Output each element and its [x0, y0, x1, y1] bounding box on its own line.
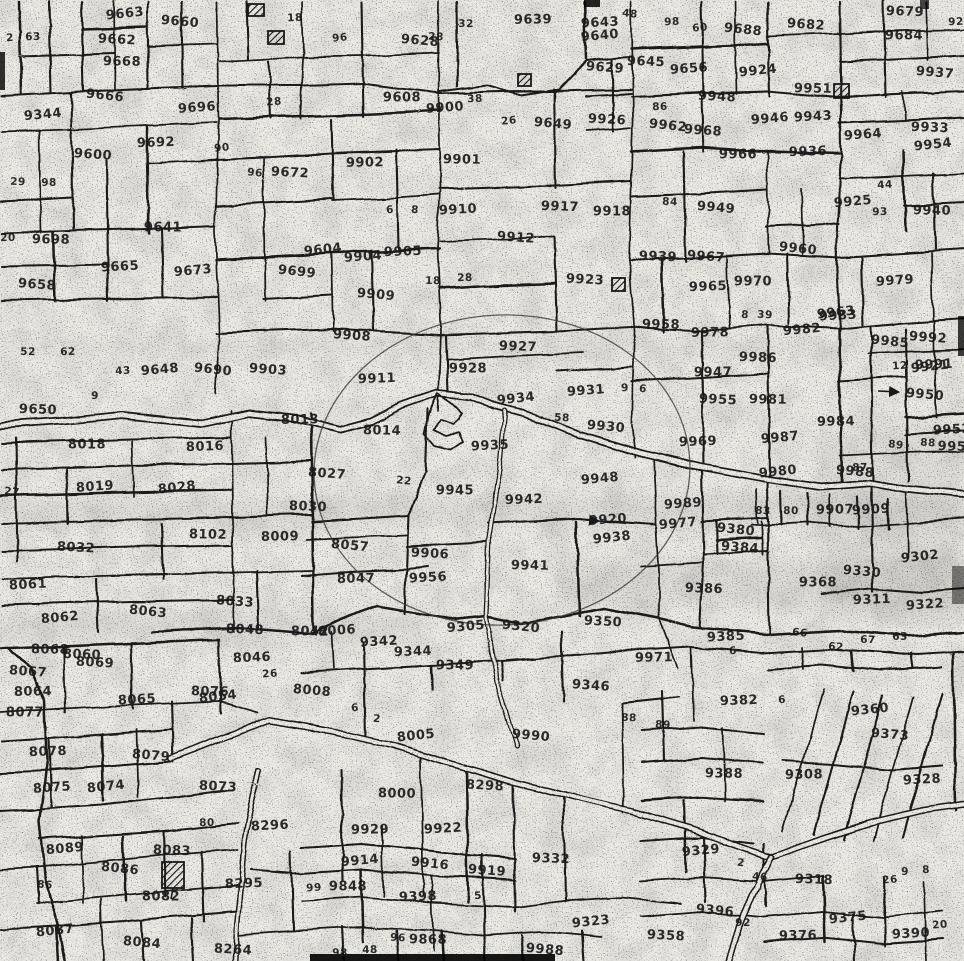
plot-number-label: 9907 — [816, 502, 854, 518]
plot-number-label: 8000 — [378, 786, 416, 802]
plot-number-label: 99 — [306, 881, 322, 894]
plot-number-label: 8078 — [29, 744, 68, 760]
plot-boundary — [65, 468, 66, 522]
plot-number-label: 9905 — [384, 244, 423, 260]
plot-number-label: 8030 — [289, 499, 328, 515]
plot-number-label: 9967 — [686, 248, 725, 266]
plot-number-label: 98 — [664, 16, 680, 29]
plot-number-label: 9662 — [98, 32, 137, 49]
plot-number-label: 9931 — [566, 382, 605, 400]
plot-number-label: 28 — [266, 95, 282, 108]
plot-number-label: 98 — [41, 177, 57, 189]
plot-number-label: 9901 — [443, 152, 481, 168]
plot-number-label: 9350 — [584, 614, 623, 631]
plot-number-label: 8082 — [142, 890, 180, 905]
plot-number-label: 63 — [25, 31, 41, 43]
plot-number-label: 9386 — [685, 581, 724, 597]
plot-number-label: 29 — [10, 176, 26, 189]
plot-number-label: 26 — [262, 667, 278, 680]
plot-number-label: 9318 — [795, 872, 834, 888]
plot-boundary — [455, 0, 456, 85]
plot-number-label: 9923 — [566, 272, 605, 289]
plot-number-label: 9903 — [248, 361, 287, 379]
plot-number-label: 9952 — [933, 422, 964, 439]
plot-number-label: 5 — [474, 890, 483, 903]
plot-number-label: 8006 — [317, 622, 356, 640]
plot-number-label: 8060 — [63, 647, 102, 663]
plot-number-label: 9332 — [532, 851, 571, 867]
plot-number-label: 8075 — [32, 779, 71, 797]
plot-number-label: 9909 — [852, 502, 891, 519]
plot-number-label: 8077 — [6, 706, 44, 721]
edge-mark — [958, 316, 964, 356]
plot-number-label: 9955 — [699, 392, 738, 409]
plot-number-label: 9650 — [19, 402, 58, 418]
plot-number-label: 9696 — [177, 99, 216, 117]
plot-number-label: 9926 — [588, 112, 627, 129]
plot-number-label: 2 — [6, 32, 14, 44]
plot-number-label: 8102 — [189, 527, 227, 543]
plot-number-label: 8065 — [118, 692, 157, 709]
edge-mark — [952, 566, 964, 604]
plot-number-label: 84 — [662, 196, 678, 209]
plot-boundary — [715, 520, 716, 553]
plot-number-label: 9969 — [679, 434, 718, 450]
plot-number-label: 39 — [757, 309, 773, 322]
plot-number-label: 8019 — [75, 478, 114, 496]
plot-number-label: 9398 — [399, 889, 438, 905]
plot-number-label: 9641 — [144, 221, 182, 236]
cadastral-map-sheet: 9663966096629668632934496669600299896929… — [0, 0, 964, 961]
hatched-building-symbol — [834, 84, 849, 98]
plot-number-label: 26 — [882, 873, 898, 886]
plot-number-label: 8048 — [226, 622, 265, 638]
plot-number-label: 66 — [792, 626, 809, 640]
plot-number-label: 9968 — [683, 122, 722, 140]
plot-number-label: 93 — [872, 206, 888, 218]
plot-number-label: 9 — [621, 382, 630, 395]
plot-number-label: 2 — [736, 857, 745, 870]
plot-number-label: 9965 — [689, 279, 728, 295]
plot-boundary — [779, 490, 780, 523]
plot-number-label: 9984 — [817, 414, 855, 430]
plot-number-label: 9983 — [819, 308, 858, 325]
plot-number-label: 9927 — [499, 339, 538, 355]
scanned-cadastral-map-page: 9663966096629668632934496669600299896929… — [0, 0, 964, 961]
plot-number-label: 2 — [372, 713, 381, 726]
plot-number-label: 96 — [247, 166, 264, 179]
plot-number-label: 9668 — [103, 54, 141, 70]
hatched-building-symbol — [248, 4, 264, 16]
plot-number-label: 92 — [735, 917, 751, 929]
plot-number-label: 63 — [892, 631, 908, 643]
plot-number-label: 9935 — [471, 438, 510, 455]
plot-number-label: 9911 — [358, 371, 397, 387]
plot-number-label: 9342 — [360, 634, 399, 651]
plot-number-label: 9900 — [425, 99, 464, 117]
plot-number-label: 9645 — [627, 54, 666, 70]
plot-number-label: 995 — [937, 439, 964, 455]
plot-number-label: 46 — [752, 870, 768, 883]
plot-number-label: 8076 — [191, 684, 229, 700]
plot-number-label: 96 — [390, 932, 406, 945]
plot-number-label: 89 — [888, 438, 905, 452]
hatched-building-symbol — [162, 862, 184, 888]
plot-number-label: 9904 — [343, 248, 382, 266]
plot-boundary — [146, 0, 147, 87]
plot-number-label: 8083 — [153, 843, 192, 859]
plot-number-label: 9943 — [794, 109, 833, 126]
plot-number-label: 98 — [332, 947, 348, 959]
plot-number-label: 8 — [741, 309, 750, 322]
plot-number-label: 8027 — [307, 465, 346, 483]
plot-number-label: 6 — [778, 694, 787, 707]
plot-number-label: 9656 — [669, 60, 708, 78]
plot-number-label: 9942 — [505, 492, 544, 508]
plot-number-label: 9918 — [593, 205, 631, 220]
plot-number-label: 9600 — [73, 146, 112, 164]
plot-number-label: 9979 — [875, 272, 914, 290]
plot-number-label: 9346 — [571, 677, 610, 695]
plot-number-label: 9388 — [705, 766, 743, 782]
plot-number-label: 88 — [621, 712, 637, 725]
plot-number-label: 9639 — [514, 12, 552, 28]
plot-number-label: 9906 — [411, 546, 450, 563]
plot-number-label: 18 — [287, 12, 303, 25]
plot-number-label: 9344 — [394, 644, 433, 660]
hatched-building-symbol — [268, 31, 284, 44]
plot-number-label: 9951 — [794, 81, 832, 97]
plot-number-label: 38 — [467, 93, 483, 106]
plot-number-label: 9945 — [436, 484, 474, 499]
plot-number-label: 9349 — [436, 659, 474, 674]
plot-number-label: 9311 — [853, 592, 892, 608]
plot-number-label: 44 — [877, 179, 893, 192]
plot-number-label: 12 — [892, 359, 908, 372]
plot-number-label: 60 — [692, 21, 709, 34]
plot-number-label: 6 — [729, 645, 738, 658]
plot-number-label: 9908 — [332, 327, 371, 345]
plot-number-label: 9308 — [785, 767, 823, 783]
plot-number-label: 9940 — [913, 203, 951, 219]
plot-number-label: 9929 — [351, 822, 389, 838]
plot-number-label: 8033 — [215, 593, 254, 611]
plot-number-label: 67 — [860, 634, 876, 647]
plot-number-label: 88 — [920, 436, 936, 449]
plot-number-label: 9978 — [691, 325, 729, 341]
plot-number-label: 80 — [783, 505, 799, 517]
plot-number-label: 32 — [458, 18, 474, 30]
plot-number-label: 9684 — [885, 29, 923, 44]
plot-number-label: 90 — [214, 141, 231, 155]
plot-number-label: 6 — [638, 383, 647, 396]
plot-number-label: 20 — [932, 918, 949, 931]
plot-number-label: 8016 — [186, 439, 225, 455]
plot-number-label: 9981 — [749, 392, 787, 408]
plot-number-label: 48 — [622, 7, 639, 21]
plot-number-label: 9919 — [467, 862, 506, 880]
plot-number-label: 9679 — [886, 4, 925, 20]
plot-number-label: 80 — [199, 817, 215, 829]
plot-number-label: 28 — [457, 272, 473, 284]
plot-number-label: 8073 — [199, 779, 238, 796]
plot-number-label: 9989 — [663, 495, 702, 513]
plot-number-label: 62 — [60, 346, 76, 358]
plot-number-label: 9382 — [720, 693, 759, 709]
plot-number-label: 9986 — [739, 350, 778, 366]
plot-number-label: 9692 — [137, 135, 176, 151]
plot-number-label: 8295 — [225, 876, 264, 892]
plot-number-label: 43 — [115, 365, 131, 378]
plot-number-label: 8046 — [233, 650, 272, 666]
plot-number-label: 9956 — [409, 570, 448, 587]
plot-number-label: 8264 — [214, 942, 253, 959]
plot-number-label: 8298 — [466, 778, 505, 795]
plot-number-label: 9390 — [892, 926, 931, 943]
plot-number-label: 9992 — [908, 329, 947, 347]
plot-number-label: 9665 — [101, 259, 140, 276]
plot-number-label: 9964 — [843, 126, 882, 144]
plot-number-label: 9 — [91, 390, 99, 402]
plot-number-label: 9936 — [789, 144, 828, 160]
plot-number-label: 27 — [4, 485, 21, 498]
plot-number-label: 9368 — [799, 576, 837, 591]
plot-boundary — [180, 0, 181, 86]
plot-number-label: 8067 — [8, 663, 47, 681]
plot-number-label: 9966 — [719, 148, 757, 163]
plot-number-label: 8064 — [14, 684, 52, 700]
edge-mark — [584, 0, 600, 7]
plot-number-label: 9 — [901, 866, 909, 878]
plot-number-label: 52 — [20, 346, 36, 358]
plot-number-label: 9385 — [707, 629, 746, 646]
plot-number-label: 8013 — [281, 412, 319, 428]
plot-number-label: 20 — [0, 232, 16, 244]
plot-number-label: 8047 — [337, 571, 375, 587]
plot-number-label: 62 — [828, 640, 844, 653]
plot-number-label: 58 — [554, 412, 570, 425]
plot-number-label: 8018 — [68, 438, 106, 453]
plot-number-label: 83 — [755, 505, 771, 518]
plot-number-label: 8061 — [9, 577, 48, 594]
plot-number-label: 9971 — [635, 650, 673, 666]
plot-number-label: 9672 — [271, 165, 310, 182]
plot-number-label: 6 — [386, 204, 395, 217]
plot-number-label: 9328 — [903, 772, 942, 789]
edge-mark — [0, 52, 5, 90]
plot-number-label: 86 — [37, 878, 53, 891]
plot-number-label: 9848 — [329, 880, 367, 895]
plot-number-label: 9682 — [786, 16, 825, 34]
plot-number-label: 9912 — [496, 229, 535, 247]
plot-number-label: 9384 — [720, 539, 759, 557]
plot-number-label: 8009 — [261, 529, 299, 545]
plot-number-label: 8 — [410, 204, 419, 217]
plot-number-label: 9947 — [694, 366, 732, 381]
plot-number-label: 9910 — [439, 202, 478, 219]
plot-number-label: 26 — [501, 114, 518, 128]
plot-number-label: 8296 — [251, 818, 290, 835]
pointer-arrow-icon — [878, 391, 898, 392]
plot-number-label: 9608 — [383, 91, 421, 106]
plot-number-label: 6 — [351, 702, 360, 715]
plot-number-label: 9629 — [585, 59, 624, 77]
plot-number-label: 92 — [948, 16, 964, 29]
plot-number-label: 9920 — [588, 511, 627, 529]
plot-number-label: 8014 — [363, 423, 401, 439]
plot-number-label: 9958 — [642, 317, 680, 333]
plot-number-label: 8 — [922, 864, 930, 876]
hatched-building-symbol — [518, 74, 531, 86]
plot-number-label: 9376 — [779, 928, 817, 944]
hatched-building-symbol — [612, 278, 625, 291]
plot-number-label: 9922 — [424, 821, 463, 838]
plot-number-label: 22 — [396, 474, 413, 488]
plot-number-label: 18 — [425, 275, 441, 287]
plot-number-label: 9941 — [511, 558, 549, 574]
plot-number-label: 9658 — [17, 276, 56, 294]
plot-number-label: 86 — [652, 101, 668, 113]
plot-number-label: 9698 — [32, 232, 70, 248]
plot-number-label: 9358 — [647, 928, 686, 945]
plot-number-label: 9902 — [346, 155, 384, 171]
plot-number-label: 9322 — [905, 596, 944, 614]
plot-number-label: 89 — [655, 719, 671, 732]
plot-number-label: 8032 — [57, 540, 96, 557]
plot-number-label: 9917 — [541, 199, 580, 215]
plot-number-label: 28 — [428, 31, 444, 44]
plot-number-label: 9868 — [409, 932, 447, 948]
plot-boundary — [430, 664, 431, 690]
plot-number-label: 9928 — [449, 362, 487, 377]
plot-number-label: 48 — [362, 944, 378, 956]
plot-number-label: 9970 — [734, 275, 772, 290]
plot-number-label: 96 — [332, 31, 349, 45]
plot-number-label: 9939 — [639, 249, 678, 265]
plot-number-label: 9933 — [911, 120, 950, 136]
plot-number-label: 9948 — [698, 89, 737, 106]
plot-boundary — [806, 492, 807, 524]
